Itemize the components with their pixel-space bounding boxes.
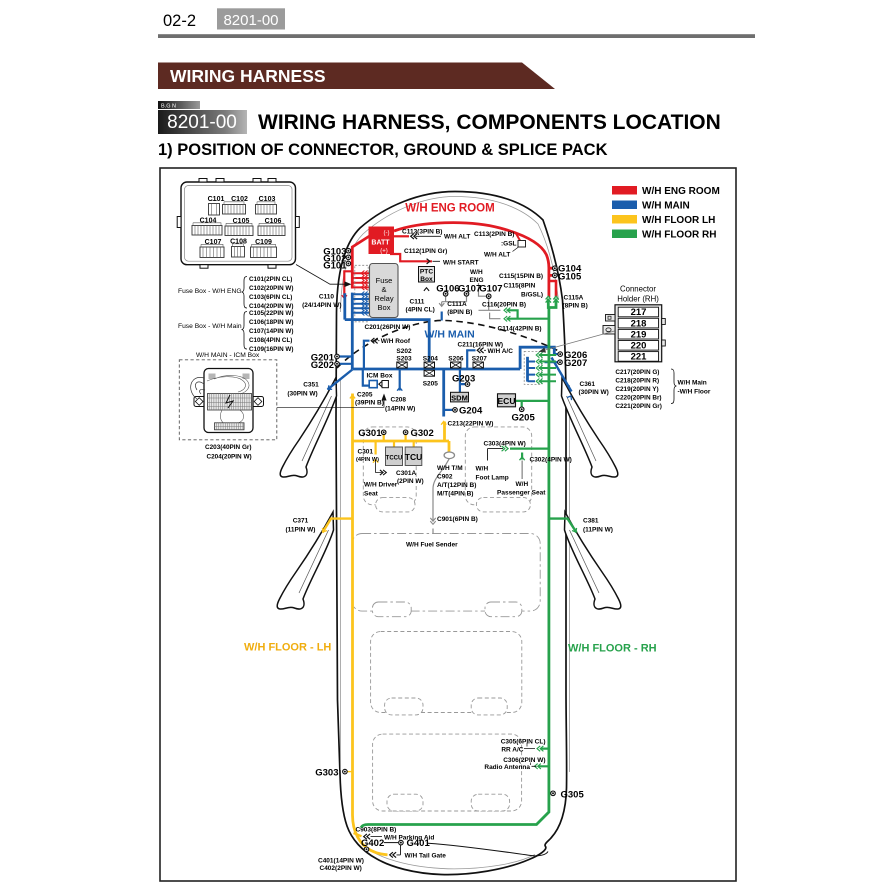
svg-text:Relay: Relay <box>374 294 393 303</box>
svg-text:G402: G402 <box>361 838 384 849</box>
svg-text:C302(4PIN W): C302(4PIN W) <box>530 457 572 464</box>
svg-text:C301A: C301A <box>396 470 417 477</box>
svg-text:G202: G202 <box>311 360 334 371</box>
svg-text:C103(6PIN CL): C103(6PIN CL) <box>249 294 292 301</box>
svg-text:W/H ENG ROOM: W/H ENG ROOM <box>405 203 494 215</box>
svg-text:C115(8PIN: C115(8PIN <box>504 282 536 289</box>
svg-text:S205: S205 <box>423 381 439 388</box>
svg-text:A/T(12PIN B): A/T(12PIN B) <box>437 482 476 489</box>
svg-text:-W/H Floor: -W/H Floor <box>678 389 711 396</box>
svg-text:C109: C109 <box>255 239 272 246</box>
svg-text:C301: C301 <box>358 449 374 456</box>
svg-text:(14PIN W): (14PIN W) <box>385 406 415 413</box>
svg-text:C104: C104 <box>200 218 217 225</box>
svg-text:C351: C351 <box>303 382 319 389</box>
svg-text:G205: G205 <box>512 413 536 424</box>
svg-text:1) POSITION OF CONNECTOR, GROU: 1) POSITION OF CONNECTOR, GROUND & SPLIC… <box>158 141 608 159</box>
svg-text:C381: C381 <box>583 518 599 525</box>
svg-text:217: 217 <box>631 307 647 318</box>
svg-text:(39PIN B): (39PIN B) <box>355 400 384 407</box>
svg-text:C113(3PIN B): C113(3PIN B) <box>402 229 442 236</box>
svg-text:W/H MAIN - ICM Box: W/H MAIN - ICM Box <box>196 352 260 359</box>
svg-text:C401(14PIN W): C401(14PIN W) <box>318 857 364 864</box>
svg-text:C106(18PIN W): C106(18PIN W) <box>249 319 293 326</box>
svg-text:C402(2PIN W): C402(2PIN W) <box>320 865 362 872</box>
svg-text:C103: C103 <box>259 196 276 203</box>
svg-text:WIRING HARNESS, COMPONENTS LOC: WIRING HARNESS, COMPONENTS LOCATION <box>258 111 721 134</box>
svg-text:C901(6PIN B): C901(6PIN B) <box>437 516 478 523</box>
svg-text:C112(1PIN Gr): C112(1PIN Gr) <box>404 248 447 255</box>
svg-text:G207: G207 <box>564 358 587 369</box>
svg-text:C305(6PIN CL): C305(6PIN CL) <box>501 739 546 746</box>
svg-text:B/GSL): B/GSL) <box>521 292 543 299</box>
svg-text:Seat: Seat <box>364 490 379 497</box>
svg-text:G301: G301 <box>358 428 382 439</box>
svg-text:Radio Antenna: Radio Antenna <box>484 764 530 771</box>
svg-text:TCU: TCU <box>405 452 422 462</box>
svg-text:W/H ALT: W/H ALT <box>484 252 510 259</box>
svg-text:S207: S207 <box>472 355 488 362</box>
svg-text:Box: Box <box>420 276 433 283</box>
svg-text:(2PIN W): (2PIN W) <box>397 478 424 485</box>
svg-text:W/H FLOOR LH: W/H FLOOR LH <box>642 215 715 226</box>
svg-text:W/H FLOOR - RH: W/H FLOOR - RH <box>568 643 657 655</box>
svg-text:C115(15PIN B): C115(15PIN B) <box>499 273 543 280</box>
svg-text:Box: Box <box>378 303 391 312</box>
svg-text:220: 220 <box>631 341 647 352</box>
svg-text:S202: S202 <box>396 348 412 355</box>
svg-text:W/H: W/H <box>516 481 529 488</box>
svg-text:(8PIN B): (8PIN B) <box>447 309 472 316</box>
svg-text:219: 219 <box>631 329 647 340</box>
svg-text:C102: C102 <box>231 196 248 203</box>
svg-text:G305: G305 <box>561 789 585 800</box>
svg-text:G106: G106 <box>436 284 459 295</box>
svg-text:Fuse Box - W/H Main: Fuse Box - W/H Main <box>178 323 242 330</box>
svg-text:Fuse Box - W/H ENG: Fuse Box - W/H ENG <box>178 288 242 295</box>
svg-text:(8PIN B): (8PIN B) <box>563 303 588 310</box>
svg-text:C205: C205 <box>357 392 373 399</box>
svg-text:C102(20PIN W): C102(20PIN W) <box>249 285 293 292</box>
svg-text:W/H MAIN: W/H MAIN <box>642 201 690 212</box>
svg-text:(-): (-) <box>384 231 390 237</box>
svg-text:W/H Driver: W/H Driver <box>364 482 398 489</box>
svg-text:G401: G401 <box>407 838 431 849</box>
svg-text:S203: S203 <box>396 355 412 362</box>
svg-text:C219(20PIN Y): C219(20PIN Y) <box>615 386 658 393</box>
svg-text:G101: G101 <box>323 261 347 272</box>
svg-text:W/H ALT: W/H ALT <box>444 234 470 241</box>
svg-text:C111: C111 <box>410 299 425 306</box>
svg-text:Passenger Seat: Passenger Seat <box>497 490 546 497</box>
svg-text:W/H Tail Gate: W/H Tail Gate <box>405 853 447 860</box>
svg-text:221: 221 <box>631 352 648 363</box>
svg-text:02-2: 02-2 <box>163 12 196 30</box>
svg-text:PTC: PTC <box>420 269 433 276</box>
svg-text:Fuse: Fuse <box>376 276 393 285</box>
svg-text:W/H FLOOR - LH: W/H FLOOR - LH <box>244 642 331 654</box>
svg-text:C208: C208 <box>391 397 407 404</box>
svg-text:G302: G302 <box>411 428 434 439</box>
svg-text:G107: G107 <box>458 284 481 295</box>
svg-text:C108: C108 <box>230 239 247 246</box>
svg-text:C204(20PIN W): C204(20PIN W) <box>207 453 252 460</box>
svg-text:8201-00: 8201-00 <box>223 12 278 29</box>
svg-text:C114(42PIN B): C114(42PIN B) <box>498 325 542 332</box>
svg-text:W/H FLOOR RH: W/H FLOOR RH <box>642 230 716 241</box>
svg-text:C220(20PIN Br): C220(20PIN Br) <box>615 395 661 402</box>
svg-text:Holder (RH): Holder (RH) <box>617 295 659 304</box>
svg-text:C105: C105 <box>233 218 250 225</box>
svg-text:W/H: W/H <box>476 466 489 473</box>
svg-text:&: & <box>381 285 386 294</box>
svg-text:(24/14PIN W): (24/14PIN W) <box>302 302 341 309</box>
svg-text:C371: C371 <box>293 518 309 525</box>
svg-text:(11PIN W): (11PIN W) <box>286 527 316 534</box>
svg-text:C221(20PIN Gr): C221(20PIN Gr) <box>615 403 662 410</box>
svg-text:Foot Lamp: Foot Lamp <box>476 475 509 482</box>
svg-text:C201(26PIN W): C201(26PIN W) <box>365 324 411 331</box>
svg-text:WIRING HARNESS: WIRING HARNESS <box>170 66 326 86</box>
svg-text::GSL: :GSL <box>501 240 517 247</box>
svg-text:G107: G107 <box>479 284 502 295</box>
svg-text:C106: C106 <box>265 218 282 225</box>
svg-text:SDM: SDM <box>451 393 468 402</box>
svg-text:C107: C107 <box>205 239 222 246</box>
svg-text:RR A/C: RR A/C <box>501 746 523 753</box>
svg-text:C113(2PIN B): C113(2PIN B) <box>474 231 514 238</box>
svg-text:W/H Roof: W/H Roof <box>381 338 411 345</box>
svg-text:G105: G105 <box>558 271 582 282</box>
svg-text:Connector: Connector <box>620 285 656 294</box>
svg-text:W/H START: W/H START <box>443 259 479 266</box>
svg-text:C101(2PIN CL): C101(2PIN CL) <box>249 276 292 283</box>
svg-text:W/H T/M: W/H T/M <box>437 465 463 472</box>
svg-text:W/H A/C: W/H A/C <box>488 348 514 355</box>
svg-text:(11PIN W): (11PIN W) <box>583 527 613 534</box>
svg-text:C217(20PIN G): C217(20PIN G) <box>615 369 659 376</box>
svg-text:ECU: ECU <box>498 396 516 406</box>
svg-text:W/H ENG ROOM: W/H ENG ROOM <box>642 186 720 197</box>
svg-text:C306(2PIN W): C306(2PIN W) <box>503 757 545 764</box>
svg-text:BATT: BATT <box>371 240 390 247</box>
svg-text:C108(4PIN CL): C108(4PIN CL) <box>249 337 292 344</box>
svg-text:C111A: C111A <box>447 301 467 308</box>
svg-text:C203(40PIN Gr): C203(40PIN Gr) <box>205 444 252 451</box>
svg-text:ICM Box: ICM Box <box>367 373 393 380</box>
svg-text:C902: C902 <box>437 474 453 481</box>
svg-text:C110: C110 <box>319 294 335 301</box>
svg-text:TCCU: TCCU <box>386 456 403 462</box>
svg-text:G204: G204 <box>459 406 483 417</box>
svg-text:C213(22PIN W): C213(22PIN W) <box>448 420 494 427</box>
svg-text:G203: G203 <box>452 373 475 384</box>
svg-text:C116(20PIN B): C116(20PIN B) <box>482 301 526 308</box>
svg-text:(4PIN W): (4PIN W) <box>356 457 379 463</box>
svg-text:C105(22PIN W): C105(22PIN W) <box>249 310 293 317</box>
svg-text:(+): (+) <box>380 249 388 255</box>
svg-text:C303(4PIN W): C303(4PIN W) <box>484 440 526 447</box>
svg-text:C107(14PIN W): C107(14PIN W) <box>249 328 293 335</box>
svg-text:C218(20PIN R): C218(20PIN R) <box>615 378 659 385</box>
svg-text:W/H MAIN: W/H MAIN <box>425 329 475 341</box>
svg-text:S206: S206 <box>448 355 464 362</box>
svg-text:C101: C101 <box>208 196 225 203</box>
svg-text:W/H: W/H <box>470 269 483 276</box>
svg-text:C115A: C115A <box>564 295 584 302</box>
svg-text:M/T(4PIN B): M/T(4PIN B) <box>437 491 473 498</box>
svg-text:W/H Main: W/H Main <box>678 380 707 387</box>
svg-text:G303: G303 <box>315 768 338 779</box>
svg-text:W/H Fuel Sender: W/H Fuel Sender <box>406 542 458 549</box>
svg-text:S204: S204 <box>423 355 439 362</box>
svg-text:(4PIN CL): (4PIN CL) <box>406 307 435 314</box>
svg-text:8201-00: 8201-00 <box>167 112 237 133</box>
svg-text:(30PIN W): (30PIN W) <box>287 391 317 398</box>
svg-text:B.G N: B.G N <box>161 104 176 110</box>
svg-text:218: 218 <box>631 318 647 329</box>
svg-text:C361: C361 <box>580 381 596 388</box>
svg-text:(30PIN W): (30PIN W) <box>579 389 609 396</box>
